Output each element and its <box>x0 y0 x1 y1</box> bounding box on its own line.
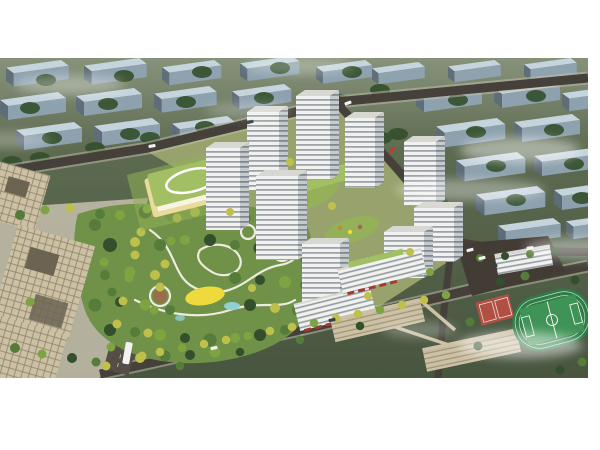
tree <box>131 251 140 260</box>
tree <box>138 352 147 361</box>
tree-cluster <box>98 98 118 110</box>
tree <box>376 306 385 315</box>
tree <box>89 219 101 231</box>
tree <box>176 362 185 371</box>
tree <box>165 305 175 315</box>
tower <box>256 170 307 260</box>
tree <box>154 239 166 251</box>
margin-bottom <box>0 378 600 450</box>
tree <box>496 278 505 287</box>
tree <box>178 344 187 353</box>
tree <box>115 210 125 220</box>
tree <box>140 300 151 311</box>
tree-cluster <box>120 128 140 140</box>
tree <box>150 306 159 315</box>
tree <box>108 288 117 297</box>
tree <box>426 268 434 276</box>
tree <box>229 272 241 284</box>
tree-cluster <box>544 124 564 136</box>
tree <box>130 327 140 337</box>
tree <box>266 327 275 336</box>
cloud <box>15 75 125 95</box>
tree <box>226 208 234 216</box>
tree <box>466 318 475 327</box>
tower <box>206 142 249 230</box>
tree <box>556 366 565 375</box>
tree <box>92 358 101 367</box>
tree-cluster <box>176 96 196 108</box>
tree <box>180 333 190 343</box>
tree <box>113 320 122 329</box>
tree <box>15 210 25 220</box>
tree <box>254 329 266 341</box>
tree <box>180 235 190 245</box>
playground-equipment <box>358 225 362 229</box>
tree <box>102 362 111 371</box>
tree <box>154 329 166 341</box>
tree <box>95 209 105 219</box>
tree <box>364 292 372 300</box>
tree <box>100 258 109 267</box>
tree <box>328 202 336 210</box>
tree <box>279 276 291 288</box>
tree <box>66 204 75 213</box>
playground-equipment <box>338 226 342 230</box>
pond <box>224 302 240 310</box>
tree-cluster <box>192 66 212 78</box>
cloud <box>458 332 582 358</box>
tree <box>156 348 165 357</box>
pond <box>175 315 185 321</box>
tree <box>103 238 117 252</box>
tree <box>356 322 365 331</box>
tree <box>354 310 363 319</box>
tree <box>406 248 414 256</box>
tree <box>501 252 509 260</box>
tree-cluster <box>20 102 40 114</box>
tree <box>288 323 297 332</box>
tower <box>345 112 384 188</box>
tree <box>270 303 280 313</box>
playground-equipment <box>348 230 352 234</box>
tree <box>204 234 216 246</box>
cloud <box>382 322 458 338</box>
tree <box>578 358 587 367</box>
tree-cluster <box>564 158 584 170</box>
tree <box>310 319 319 328</box>
tree <box>255 275 265 285</box>
tree <box>244 299 256 311</box>
tree <box>296 336 305 345</box>
margin-right <box>588 58 600 378</box>
tree <box>150 270 160 280</box>
tower <box>296 90 339 180</box>
tree <box>67 353 77 363</box>
tree-cluster <box>466 126 486 138</box>
tree <box>571 276 580 285</box>
tree <box>107 343 116 352</box>
tree <box>41 206 50 215</box>
cloud <box>460 137 580 163</box>
cloud <box>205 102 295 118</box>
tree <box>420 296 429 305</box>
tree <box>248 284 256 292</box>
tree <box>144 329 153 338</box>
tree <box>521 272 530 281</box>
tree <box>200 340 209 349</box>
tree <box>119 297 128 306</box>
cloud <box>395 179 545 201</box>
tree <box>244 332 253 341</box>
cloud <box>245 58 355 74</box>
tree <box>442 291 451 300</box>
tree <box>38 350 47 359</box>
tree <box>10 343 20 353</box>
tree <box>130 237 140 247</box>
tree <box>167 237 176 246</box>
tree <box>230 240 240 250</box>
tree <box>26 298 35 307</box>
tree <box>89 299 102 312</box>
margin-top <box>0 0 600 58</box>
aerial-rendering <box>0 0 600 450</box>
tree <box>125 274 134 283</box>
tree <box>398 301 407 310</box>
rendering-canvas <box>0 0 600 450</box>
tree <box>100 270 110 280</box>
tree <box>156 283 165 292</box>
tree <box>230 333 240 343</box>
tree <box>236 348 245 357</box>
tree-cluster <box>526 90 546 102</box>
tree <box>222 336 231 345</box>
tree <box>185 350 195 360</box>
tree <box>161 260 170 269</box>
tree <box>286 158 294 166</box>
